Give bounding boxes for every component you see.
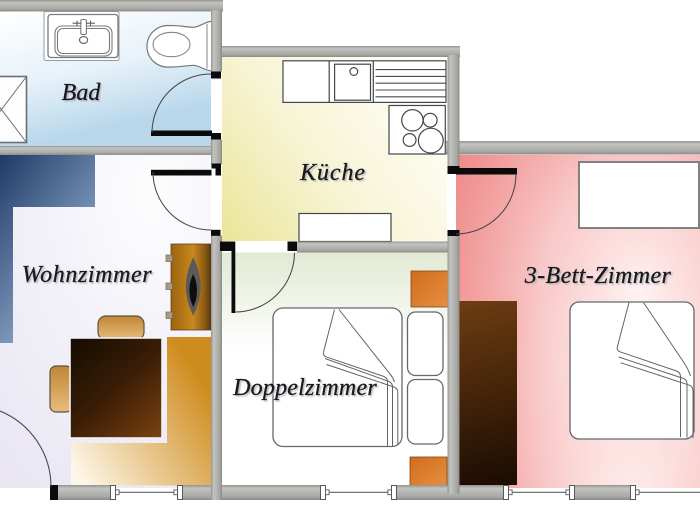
svg-text:Wohnzimmer: Wohnzimmer xyxy=(22,262,153,288)
svg-text:3-Bett-Zimmer: 3-Bett-Zimmer xyxy=(524,263,672,289)
svg-text:Doppelzimmer: Doppelzimmer xyxy=(232,375,377,401)
svg-text:Küche: Küche xyxy=(299,160,366,186)
svg-text:Bad: Bad xyxy=(62,80,102,106)
